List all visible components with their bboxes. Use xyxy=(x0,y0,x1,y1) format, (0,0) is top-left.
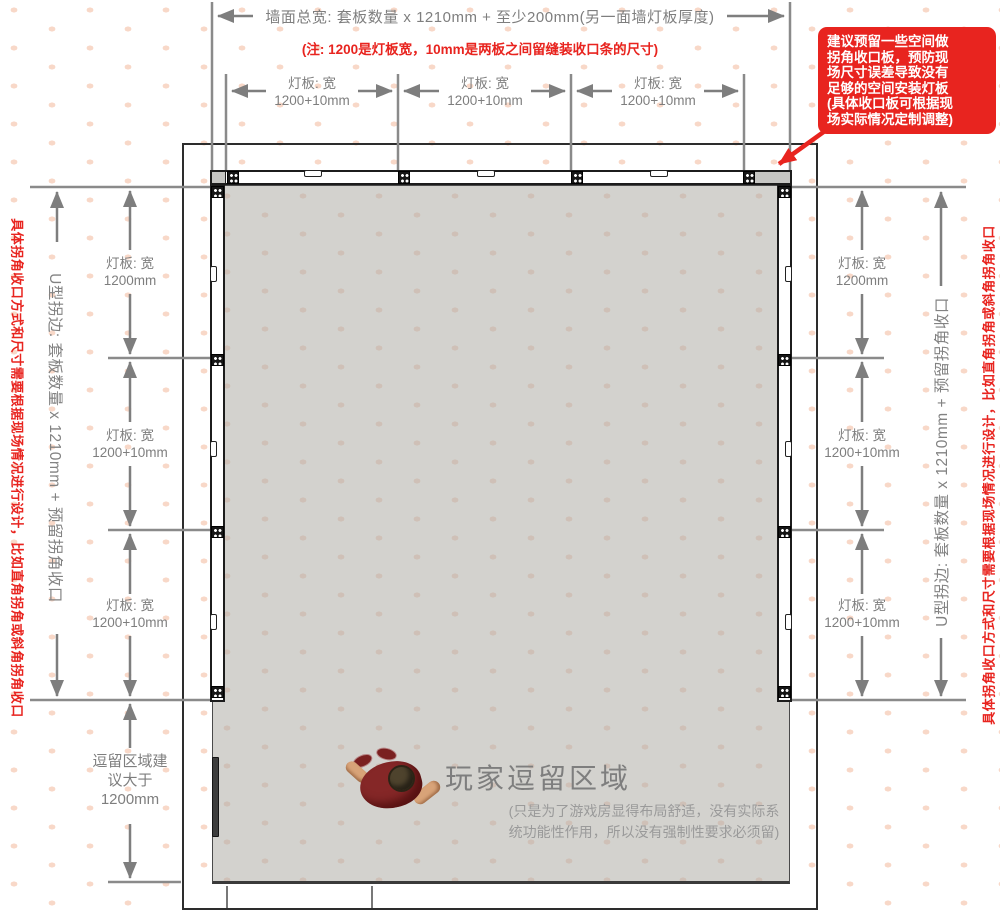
panel-clip-icon xyxy=(211,526,224,538)
top-panel-width-label-3: 灯板: 宽 1200+10mm xyxy=(610,76,706,109)
panel-connector-icon xyxy=(785,614,792,630)
panel-clip-icon xyxy=(211,686,224,698)
floor-plan-canvas: 墙面总宽: 套板数量 x 1210mm + 至少200mm(另一面墙灯板厚度) … xyxy=(0,0,1000,916)
player-stay-area-note: (只是为了游戏房显得布局舒适，没有实际系 统功能性作用，所以没有强制性要求必须留… xyxy=(468,801,820,843)
panel-clip-icon xyxy=(571,171,583,184)
left-wall-equipment-panel xyxy=(212,757,219,837)
panel-clip-icon xyxy=(398,171,410,184)
right-corner-design-note: 具体拐角收口方式和尺寸需要根据现场情况进行设计，比如直角拐角或斜角拐角收口 xyxy=(979,225,998,725)
left-panel-width-label-2: 灯板: 宽 1200+10mm xyxy=(82,428,178,461)
player-head xyxy=(388,765,415,792)
panel-connector-icon xyxy=(477,170,495,177)
left-panel-width-label-1: 灯板: 宽 1200mm xyxy=(82,256,178,289)
panel-connector-icon xyxy=(210,614,217,630)
corner-reserve-callout: 建议预留一些空间做 拐角收口板，预防现 场尺寸误差导致没有 足够的空间安装灯板 … xyxy=(818,27,996,134)
player-stay-area-title: 玩家逗留区域 xyxy=(445,757,631,797)
top-panel-width-label-2: 灯板: 宽 1200+10mm xyxy=(437,76,533,109)
panel-clip-icon xyxy=(778,186,791,198)
top-panel-width-label-1: 灯板: 宽 1200+10mm xyxy=(264,76,360,109)
panel-clip-icon xyxy=(778,686,791,698)
stay-area-min-size-label: 逗留区域建 议大于 1200mm xyxy=(82,752,178,809)
panel-connector-icon xyxy=(785,266,792,282)
left-u-edge-dimension-label: U型拐边: 套板数量 x 1210mm + 预留拐角收口 xyxy=(45,273,67,603)
panel-clip-icon xyxy=(743,171,755,184)
panel-clip-icon xyxy=(227,171,239,184)
panel-connector-icon xyxy=(210,441,217,457)
panel-connector-icon xyxy=(304,170,322,177)
top-left-corner-reserve-block xyxy=(212,172,226,183)
left-corner-design-note: 具体拐角收口方式和尺寸需要根据现场情况进行设计，比如直角拐角或斜角拐角收口 xyxy=(9,218,28,718)
right-panel-width-label-1: 灯板: 宽 1200mm xyxy=(814,256,910,289)
left-light-panel-wall xyxy=(210,184,225,702)
panel-clip-icon xyxy=(778,526,791,538)
panel-gap-note: (注: 1200是灯板宽，10mm是两板之间留缝装收口条的尺寸) xyxy=(270,38,690,58)
total-wall-width-label: 墙面总宽: 套板数量 x 1210mm + 至少200mm(另一面墙灯板厚度) xyxy=(255,6,725,27)
right-panel-width-label-2: 灯板: 宽 1200+10mm xyxy=(814,428,910,461)
panel-connector-icon xyxy=(650,170,668,177)
right-panel-width-label-3: 灯板: 宽 1200+10mm xyxy=(814,598,910,631)
right-light-panel-wall xyxy=(777,184,792,702)
panel-clip-icon xyxy=(778,354,791,366)
panel-connector-icon xyxy=(210,266,217,282)
right-u-edge-dimension-label: U型拐边: 套板数量 x 1210mm + 预留拐角收口 xyxy=(930,297,952,627)
bottom-wall-strip xyxy=(184,884,816,908)
panel-clip-icon xyxy=(211,354,224,366)
top-light-panel-wall xyxy=(210,170,792,185)
left-panel-width-label-3: 灯板: 宽 1200+10mm xyxy=(82,598,178,631)
panel-connector-icon xyxy=(785,441,792,457)
panel-clip-icon xyxy=(211,186,224,198)
top-right-corner-reserve-block xyxy=(754,172,790,183)
